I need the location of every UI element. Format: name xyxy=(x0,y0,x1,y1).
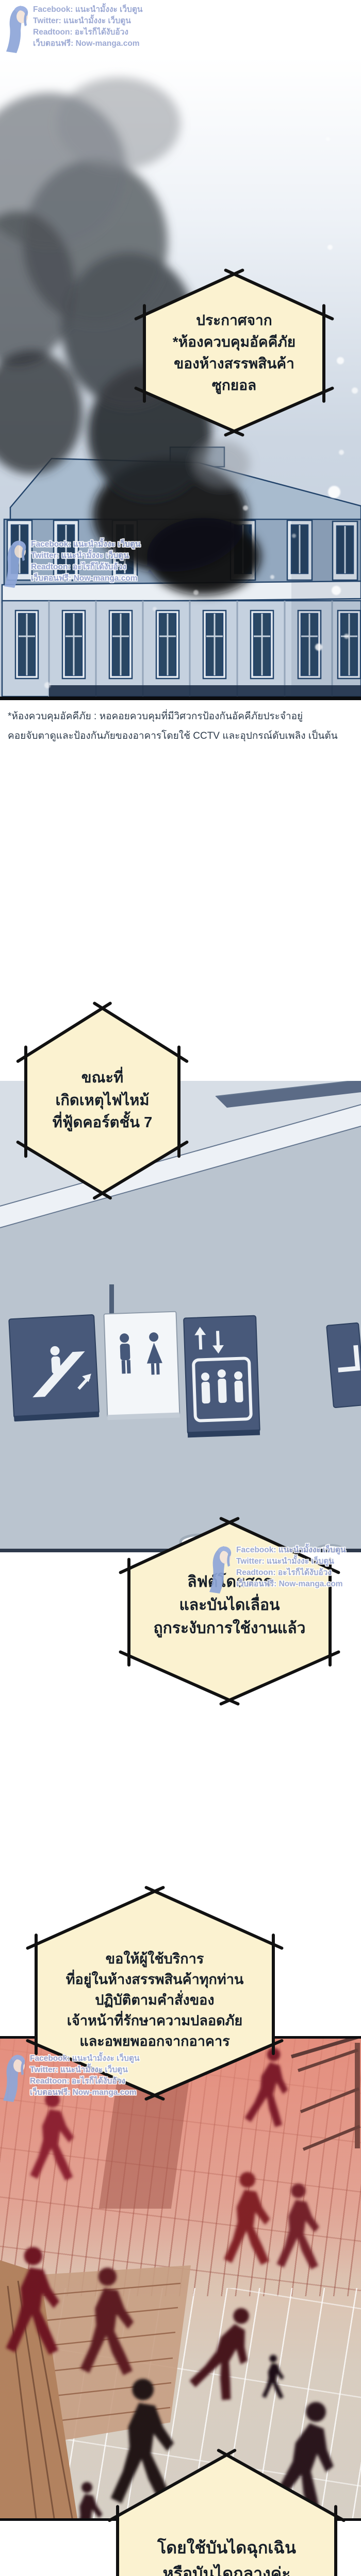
watermark-line: Twitter: แนะนำมั้งงะ เว็บตูน xyxy=(31,550,141,562)
watermark-line: Readtoon: อะไรก็ได้งับอ้วง xyxy=(30,2076,140,2087)
watermark-line: Twitter: แนะนำมั้งงะ เว็บตูน xyxy=(30,2064,140,2076)
bubble-line: ซูกยอล xyxy=(212,375,256,396)
bubble-line: เจ้าหน้าที่รักษาความปลอดภัย xyxy=(67,2011,242,2031)
speech-bubble-announcement-2: ขณะที่ เกิดเหตุไฟไหม้ ที่ฟู้ดคอร์ตชั้น 7 xyxy=(15,998,189,1204)
watermark-line: Facebook: แนะนำมั้งงะ เว็บตูน xyxy=(30,2053,140,2064)
watermark-line: เว็บตอนฟรี: Now-manga.com xyxy=(236,1579,346,1590)
restroom-sign xyxy=(104,1312,179,1420)
watermark-line: เว็บตอนฟรี: Now-manga.com xyxy=(31,573,141,584)
escalator-sign xyxy=(9,1315,99,1421)
webtoon-page: *ห้องควบคุมอัคคีภัย : หอคอยควบคุมที่มีวิ… xyxy=(0,0,361,2576)
watermark-line: Twitter: แนะนำมั้งงะ เว็บตูน xyxy=(236,1556,346,1567)
bubble-text: ขณะที่ เกิดเหตุไฟไหม้ ที่ฟู้ดคอร์ตชั้น 7 xyxy=(26,1008,179,1193)
speech-bubble-announcement-3: ลิฟต์โดยสาร และบันไดเลื่อน ถูกระงับการใช… xyxy=(119,1512,340,1710)
sign-pole xyxy=(109,1284,114,1317)
bubble-line: หรือบันไดกลางค่ะ xyxy=(163,2561,291,2576)
bubble-text: โดยใช้บันไดฉุกเฉิน หรือบันไดกลางค่ะ xyxy=(118,2444,336,2576)
bubble-line: โดยใช้บันไดฉุกเฉิน xyxy=(157,2535,296,2561)
watermark-line: Twitter: แนะนำมั้งงะ เว็บตูน xyxy=(33,15,143,27)
girl-avatar-icon xyxy=(2,2053,26,2103)
speech-bubble-announcement-5: โดยใช้บันไดฉุกเฉิน หรือบันไดกลางค่ะ xyxy=(107,2445,346,2576)
watermark: Facebook: แนะนำมั้งงะ เว็บตูน Twitter: แ… xyxy=(5,4,143,54)
girl-avatar-icon xyxy=(5,4,29,54)
watermark-line: เว็บตอนฟรี: Now-manga.com xyxy=(30,2087,140,2098)
watermark: Facebook: แนะนำมั้งงะ เว็บตูน Twitter: แ… xyxy=(208,1545,346,1594)
bubble-line: *ห้องควบคุมอัคคีภัย xyxy=(173,331,296,353)
watermark: Facebook: แนะนำมั้งงะ เว็บตูน Twitter: แ… xyxy=(2,2053,140,2103)
watermark-lines: Facebook: แนะนำมั้งงะ เว็บตูน Twitter: แ… xyxy=(30,2053,140,2098)
watermark: Facebook: แนะนำมั้งงะ เว็บตูน Twitter: แ… xyxy=(3,539,141,588)
watermark-line: Readtoon: อะไรก็ได้งับอ้วง xyxy=(31,562,141,573)
bubble-line: และอพยพออกจากอาคาร xyxy=(79,2031,229,2052)
bubble-text: ลิฟต์โดยสาร และบันไดเลื่อน ถูกระงับการใช… xyxy=(129,1516,330,1694)
bubble-line: เกิดเหตุไฟไหม้ xyxy=(55,1090,149,1112)
bubble-line: และบันไดเลื่อน xyxy=(179,1594,280,1617)
watermark-line: Facebook: แนะนำมั้งงะ เว็บตูน xyxy=(33,4,143,15)
bubble-line: ที่ฟู้ดคอร์ตชั้น 7 xyxy=(53,1112,152,1134)
bubble-line: ขอให้ผู้ใช้บริการ xyxy=(106,1949,204,1970)
bubble-text: ประกาศจาก *ห้องควบคุมอัคคีภัย ของห้างสรร… xyxy=(144,274,324,431)
elevator-sign xyxy=(184,1316,260,1438)
watermark-line: Facebook: แนะนำมั้งงะ เว็บตูน xyxy=(236,1545,346,1556)
footnote-line: คอยจับตาดูและป้องกันภัยของอาคารโดยใช้ CC… xyxy=(8,726,356,746)
bubble-line: ขณะที่ xyxy=(81,1067,123,1090)
speech-bubble-announcement-1: ประกาศจาก *ห้องควบคุมอัคคีภัย ของห้างสรร… xyxy=(134,264,334,442)
watermark-line: เว็บตอนฟรี: Now-manga.com xyxy=(33,38,143,49)
bubble-line: ถูกระงับการใช้งานแล้ว xyxy=(154,1617,306,1640)
side-face-shading xyxy=(291,519,361,697)
watermark-line: Readtoon: อะไรก็ได้งับอ้วง xyxy=(33,27,143,38)
bubble-line: ปฏิบัติตามคำสั่งของ xyxy=(95,1990,214,2011)
watermark-line: Facebook: แนะนำมั้งงะ เว็บตูน xyxy=(31,539,141,550)
stair-railing xyxy=(291,2039,361,2149)
watermark-lines: Facebook: แนะนำมั้งงะ เว็บตูน Twitter: แ… xyxy=(31,539,141,584)
footnote-line: *ห้องควบคุมอัคคีภัย : หอคอยควบคุมที่มีวิ… xyxy=(8,707,356,726)
bubble-line: ประกาศจาก xyxy=(196,310,272,331)
watermark-line: Readtoon: อะไรก็ได้งับอ้วง xyxy=(236,1567,346,1579)
watermark-lines: Facebook: แนะนำมั้งงะ เว็บตูน Twitter: แ… xyxy=(236,1545,346,1590)
bubble-line: ของห้างสรรพสินค้า xyxy=(174,353,294,375)
girl-avatar-icon xyxy=(208,1545,232,1594)
bubble-line: ที่อยู่ในห้างสรรพสินค้าทุกท่าน xyxy=(66,1970,244,1990)
girl-avatar-icon xyxy=(3,539,27,588)
watermark-lines: Facebook: แนะนำมั้งงะ เว็บตูน Twitter: แ… xyxy=(33,4,143,49)
footnote: *ห้องควบคุมอัคคีภัย : หอคอยควบคุมที่มีวิ… xyxy=(8,707,356,746)
